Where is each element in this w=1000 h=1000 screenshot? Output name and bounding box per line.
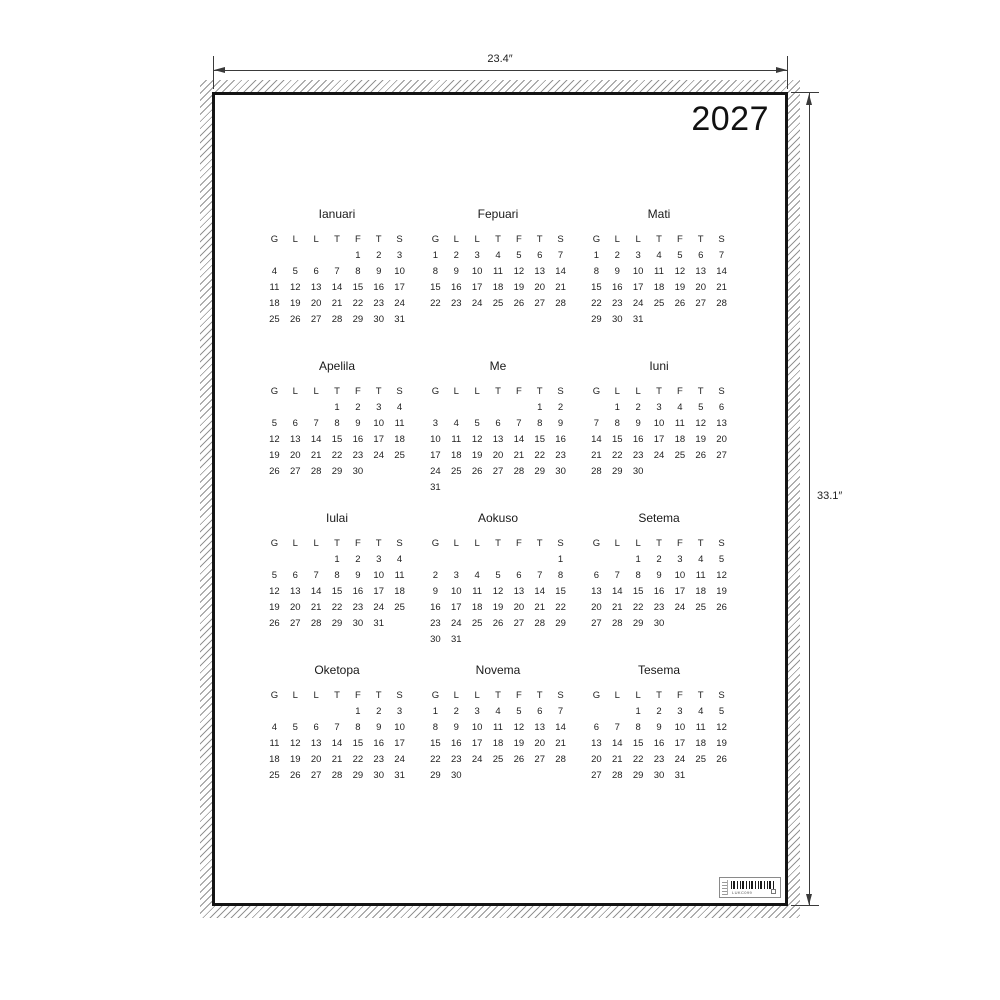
day-of-week-header: T [488,383,509,399]
month-block: ApelilaGLLTFTS12345678910111213141516171… [264,359,410,511]
day-cell: 27 [586,767,607,783]
day-cell: 18 [649,279,670,295]
day-cell: 9 [368,719,389,735]
day-cell: 26 [264,463,285,479]
day-cell: 22 [628,599,649,615]
day-cell: 10 [628,263,649,279]
month-block: IulaiGLLTFTS1234567891011121314151617181… [264,511,410,663]
day-cell: 21 [550,279,571,295]
day-of-week-header: L [467,383,488,399]
day-cell: 11 [467,583,488,599]
day-of-week-header: S [711,231,732,247]
day-cell: 21 [327,751,348,767]
day-cell: 8 [628,567,649,583]
day-cell: 26 [508,751,529,767]
dimension-width-label: 23.4″ [213,53,787,65]
day-cell: 28 [711,295,732,311]
day-cell: 15 [347,279,368,295]
day-cell [306,399,327,415]
day-cell: 10 [389,263,410,279]
day-of-week-header: T [649,231,670,247]
day-cell: 17 [669,583,690,599]
day-cell: 27 [306,311,327,327]
day-cell: 1 [347,247,368,263]
day-cell: 16 [446,279,467,295]
day-cell: 3 [467,247,488,263]
day-of-week-header: L [446,535,467,551]
day-of-week-header: L [607,535,628,551]
day-cell: 18 [264,751,285,767]
day-cell: 14 [607,735,628,751]
day-of-week-header: S [389,231,410,247]
day-cell: 10 [669,719,690,735]
day-cell: 30 [347,463,368,479]
day-cell: 21 [586,447,607,463]
day-of-week-header: F [508,231,529,247]
month-days-grid: GLLTFTS123456789101112131415161718192021… [264,687,410,783]
day-cell: 18 [669,431,690,447]
day-cell: 8 [347,719,368,735]
day-cell: 6 [690,247,711,263]
day-cell: 1 [550,551,571,567]
day-cell: 20 [529,735,550,751]
day-cell: 5 [264,567,285,583]
day-cell: 21 [607,751,628,767]
day-cell: 30 [649,615,670,631]
day-cell: 23 [347,599,368,615]
month-title: Iuni [586,359,732,374]
day-cell [649,463,670,479]
day-of-week-header: L [285,383,306,399]
day-of-week-header: L [306,535,327,551]
month-title: Tesema [586,663,732,678]
day-cell: 25 [488,751,509,767]
day-cell: 27 [488,463,509,479]
day-of-week-header: T [488,687,509,703]
day-cell: 9 [628,415,649,431]
barcode-side-text [722,880,728,895]
day-cell: 27 [306,767,327,783]
day-of-week-header: T [529,231,550,247]
day-cell [550,767,571,783]
day-cell: 10 [368,567,389,583]
day-cell: 1 [628,551,649,567]
day-cell: 7 [508,415,529,431]
day-cell: 31 [389,311,410,327]
day-cell: 14 [327,279,348,295]
day-cell: 4 [264,263,285,279]
day-cell: 19 [264,599,285,615]
day-cell: 14 [711,263,732,279]
day-cell: 3 [389,247,410,263]
day-cell: 7 [711,247,732,263]
day-cell: 11 [488,263,509,279]
day-cell: 25 [669,447,690,463]
day-cell: 15 [550,583,571,599]
day-cell: 24 [467,295,488,311]
day-cell: 24 [669,599,690,615]
day-cell: 29 [586,311,607,327]
day-cell: 13 [529,719,550,735]
day-cell: 4 [690,703,711,719]
day-of-week-header: L [306,231,327,247]
barcode-code-text: LUKC099 [732,890,752,895]
day-cell: 31 [628,311,649,327]
day-cell: 20 [690,279,711,295]
day-cell: 25 [649,295,670,311]
day-cell: 4 [446,415,467,431]
day-cell: 27 [690,295,711,311]
day-cell: 27 [586,615,607,631]
day-cell: 1 [327,399,348,415]
day-cell: 28 [550,751,571,767]
day-cell: 28 [306,463,327,479]
month-days-grid: GLLTFTS123456789101112131415161718192021… [586,231,732,327]
day-cell: 8 [327,567,348,583]
day-cell: 18 [446,447,467,463]
day-cell: 29 [529,463,550,479]
day-cell: 14 [529,583,550,599]
day-cell [649,311,670,327]
day-cell: 22 [347,751,368,767]
day-cell: 15 [327,583,348,599]
day-cell [690,615,711,631]
day-of-week-header: T [368,687,389,703]
day-of-week-header: L [467,687,488,703]
day-cell [467,399,488,415]
day-cell: 26 [264,615,285,631]
day-of-week-header: L [306,383,327,399]
day-cell: 12 [467,431,488,447]
day-of-week-header: L [285,687,306,703]
day-cell: 4 [467,567,488,583]
day-cell: 13 [306,279,327,295]
day-cell [368,463,389,479]
day-of-week-header: F [508,535,529,551]
day-cell: 6 [488,415,509,431]
month-title: Setema [586,511,732,526]
day-cell [529,767,550,783]
day-cell: 8 [347,263,368,279]
day-of-week-header: G [425,231,446,247]
day-cell: 26 [285,311,306,327]
day-cell: 2 [425,567,446,583]
day-cell [529,479,550,495]
day-cell: 14 [327,735,348,751]
day-cell: 11 [690,567,711,583]
day-cell: 23 [347,447,368,463]
day-of-week-header: T [327,383,348,399]
day-cell: 18 [389,583,410,599]
day-cell: 30 [550,463,571,479]
day-cell: 6 [529,703,550,719]
day-cell: 10 [368,415,389,431]
day-cell: 26 [690,447,711,463]
day-cell: 9 [425,583,446,599]
day-of-week-header: L [285,535,306,551]
day-cell: 4 [669,399,690,415]
day-of-week-header: T [690,535,711,551]
day-cell: 30 [425,631,446,647]
day-cell: 20 [285,447,306,463]
day-of-week-header: L [285,231,306,247]
day-cell: 6 [586,719,607,735]
day-of-week-header: T [488,231,509,247]
day-cell: 26 [467,463,488,479]
day-cell [711,767,732,783]
day-cell: 29 [327,615,348,631]
day-cell [529,551,550,567]
month-title: Novema [425,663,571,678]
month-title: Me [425,359,571,374]
day-cell: 21 [508,447,529,463]
day-cell: 1 [586,247,607,263]
day-cell: 3 [649,399,670,415]
day-cell: 6 [306,263,327,279]
day-cell: 15 [607,431,628,447]
day-cell: 27 [711,447,732,463]
day-cell: 2 [446,703,467,719]
month-title: Mati [586,207,732,222]
day-cell: 30 [347,615,368,631]
day-of-week-header: F [347,687,368,703]
day-of-week-header: S [389,383,410,399]
day-cell: 23 [649,599,670,615]
day-cell [508,767,529,783]
day-of-week-header: T [690,687,711,703]
day-cell: 19 [508,735,529,751]
day-cell: 2 [607,247,628,263]
day-cell: 31 [389,767,410,783]
day-cell: 28 [327,767,348,783]
day-cell: 23 [446,295,467,311]
day-cell: 2 [550,399,571,415]
day-cell: 12 [285,279,306,295]
day-cell: 28 [508,463,529,479]
day-of-week-header: S [550,535,571,551]
day-cell: 15 [586,279,607,295]
day-cell: 21 [529,599,550,615]
day-cell [488,399,509,415]
day-of-week-header: S [389,687,410,703]
day-of-week-header: T [488,535,509,551]
day-cell: 22 [628,751,649,767]
day-cell: 18 [690,583,711,599]
day-cell [586,551,607,567]
day-of-week-header: F [669,687,690,703]
day-cell [529,631,550,647]
day-cell: 9 [607,263,628,279]
day-of-week-header: G [264,687,285,703]
day-cell: 9 [368,263,389,279]
day-cell [508,399,529,415]
day-cell: 2 [347,551,368,567]
day-cell: 25 [389,447,410,463]
day-cell [508,551,529,567]
day-cell: 24 [389,751,410,767]
day-cell: 15 [529,431,550,447]
month-title: Apelila [264,359,410,374]
day-of-week-header: F [669,383,690,399]
day-of-week-header: G [586,231,607,247]
day-cell [669,311,690,327]
day-cell: 23 [446,751,467,767]
day-cell: 16 [347,583,368,599]
day-cell: 1 [607,399,628,415]
day-cell: 19 [669,279,690,295]
day-cell: 17 [446,599,467,615]
day-cell [467,767,488,783]
month-days-grid: GLLTFTS123456789101112131415161718192021… [425,231,571,311]
day-cell: 26 [285,767,306,783]
day-cell: 3 [669,551,690,567]
barcode-icon [731,881,776,889]
day-cell: 19 [285,295,306,311]
day-cell [446,479,467,495]
day-cell [550,479,571,495]
day-cell: 4 [649,247,670,263]
day-cell: 16 [347,431,368,447]
month-block: MeGLLTFTS1234567891011121314151617181920… [425,359,571,511]
day-cell: 23 [628,447,649,463]
day-cell: 25 [264,767,285,783]
day-cell [425,551,446,567]
day-cell: 25 [690,751,711,767]
day-cell: 27 [529,295,550,311]
day-cell: 21 [711,279,732,295]
day-cell: 14 [306,431,327,447]
day-cell: 5 [669,247,690,263]
day-cell: 5 [285,263,306,279]
day-cell: 3 [446,567,467,583]
day-cell: 3 [425,415,446,431]
day-cell: 21 [306,447,327,463]
day-of-week-header: L [628,687,649,703]
day-cell: 25 [264,311,285,327]
day-cell: 10 [467,263,488,279]
day-cell: 22 [425,295,446,311]
day-cell: 28 [586,463,607,479]
day-of-week-header: T [327,535,348,551]
day-cell [389,463,410,479]
day-cell: 13 [690,263,711,279]
day-cell: 6 [508,567,529,583]
day-cell: 15 [347,735,368,751]
day-of-week-header: G [586,535,607,551]
day-of-week-header: S [389,535,410,551]
day-cell: 14 [607,583,628,599]
day-cell: 13 [529,263,550,279]
day-cell: 3 [368,551,389,567]
day-cell: 3 [628,247,649,263]
day-cell [607,551,628,567]
day-cell: 23 [550,447,571,463]
day-cell: 4 [488,247,509,263]
month-block: AokusoGLLTFTS123456789101112131415161718… [425,511,571,663]
day-cell [690,311,711,327]
day-cell: 18 [488,735,509,751]
day-cell: 8 [327,415,348,431]
day-cell: 28 [327,311,348,327]
day-cell: 12 [669,263,690,279]
day-of-week-header: T [529,535,550,551]
day-cell: 13 [285,583,306,599]
day-of-week-header: S [711,383,732,399]
day-of-week-header: L [467,535,488,551]
day-cell: 10 [669,567,690,583]
day-cell: 7 [327,719,348,735]
day-of-week-header: T [649,535,670,551]
day-cell: 25 [467,615,488,631]
day-cell: 25 [690,599,711,615]
day-of-week-header: G [264,535,285,551]
day-cell: 12 [711,567,732,583]
month-block: IanuariGLLTFTS12345678910111213141516171… [264,207,410,359]
day-cell [306,247,327,263]
month-block: NovemaGLLTFTS123456789101112131415161718… [425,663,571,815]
day-cell: 20 [711,431,732,447]
day-of-week-header: L [628,535,649,551]
day-cell: 12 [264,583,285,599]
day-cell: 23 [368,751,389,767]
day-cell: 5 [711,551,732,567]
day-cell [306,551,327,567]
day-cell: 25 [488,295,509,311]
day-cell [690,463,711,479]
arrowhead-right-icon [776,67,787,73]
day-cell [711,615,732,631]
day-cell: 17 [467,735,488,751]
month-title: Ianuari [264,207,410,222]
width-extension-line-right [787,56,788,89]
day-of-week-header: L [628,383,649,399]
day-cell: 6 [529,247,550,263]
day-cell: 31 [368,615,389,631]
arrowhead-up-icon [806,94,812,105]
day-cell [550,631,571,647]
month-title: Oketopa [264,663,410,678]
day-cell: 4 [389,399,410,415]
day-of-week-header: L [628,231,649,247]
day-cell: 9 [649,719,670,735]
day-cell: 13 [488,431,509,447]
day-cell: 12 [690,415,711,431]
day-cell [264,247,285,263]
day-cell: 17 [389,279,410,295]
day-cell: 8 [425,719,446,735]
day-cell [669,463,690,479]
day-cell: 30 [446,767,467,783]
day-cell: 19 [711,735,732,751]
day-of-week-header: L [467,231,488,247]
day-of-week-header: T [327,687,348,703]
day-of-week-header: T [649,687,670,703]
day-cell: 2 [446,247,467,263]
day-cell: 17 [628,279,649,295]
day-cell: 5 [508,703,529,719]
day-cell [607,703,628,719]
day-cell: 29 [347,311,368,327]
day-cell: 4 [389,551,410,567]
day-cell: 3 [669,703,690,719]
month-block: MatiGLLTFTS12345678910111213141516171819… [586,207,732,359]
day-cell: 15 [327,431,348,447]
day-cell: 2 [368,247,389,263]
day-cell [690,767,711,783]
month-title: Aokuso [425,511,571,526]
day-cell: 13 [306,735,327,751]
day-cell [586,399,607,415]
